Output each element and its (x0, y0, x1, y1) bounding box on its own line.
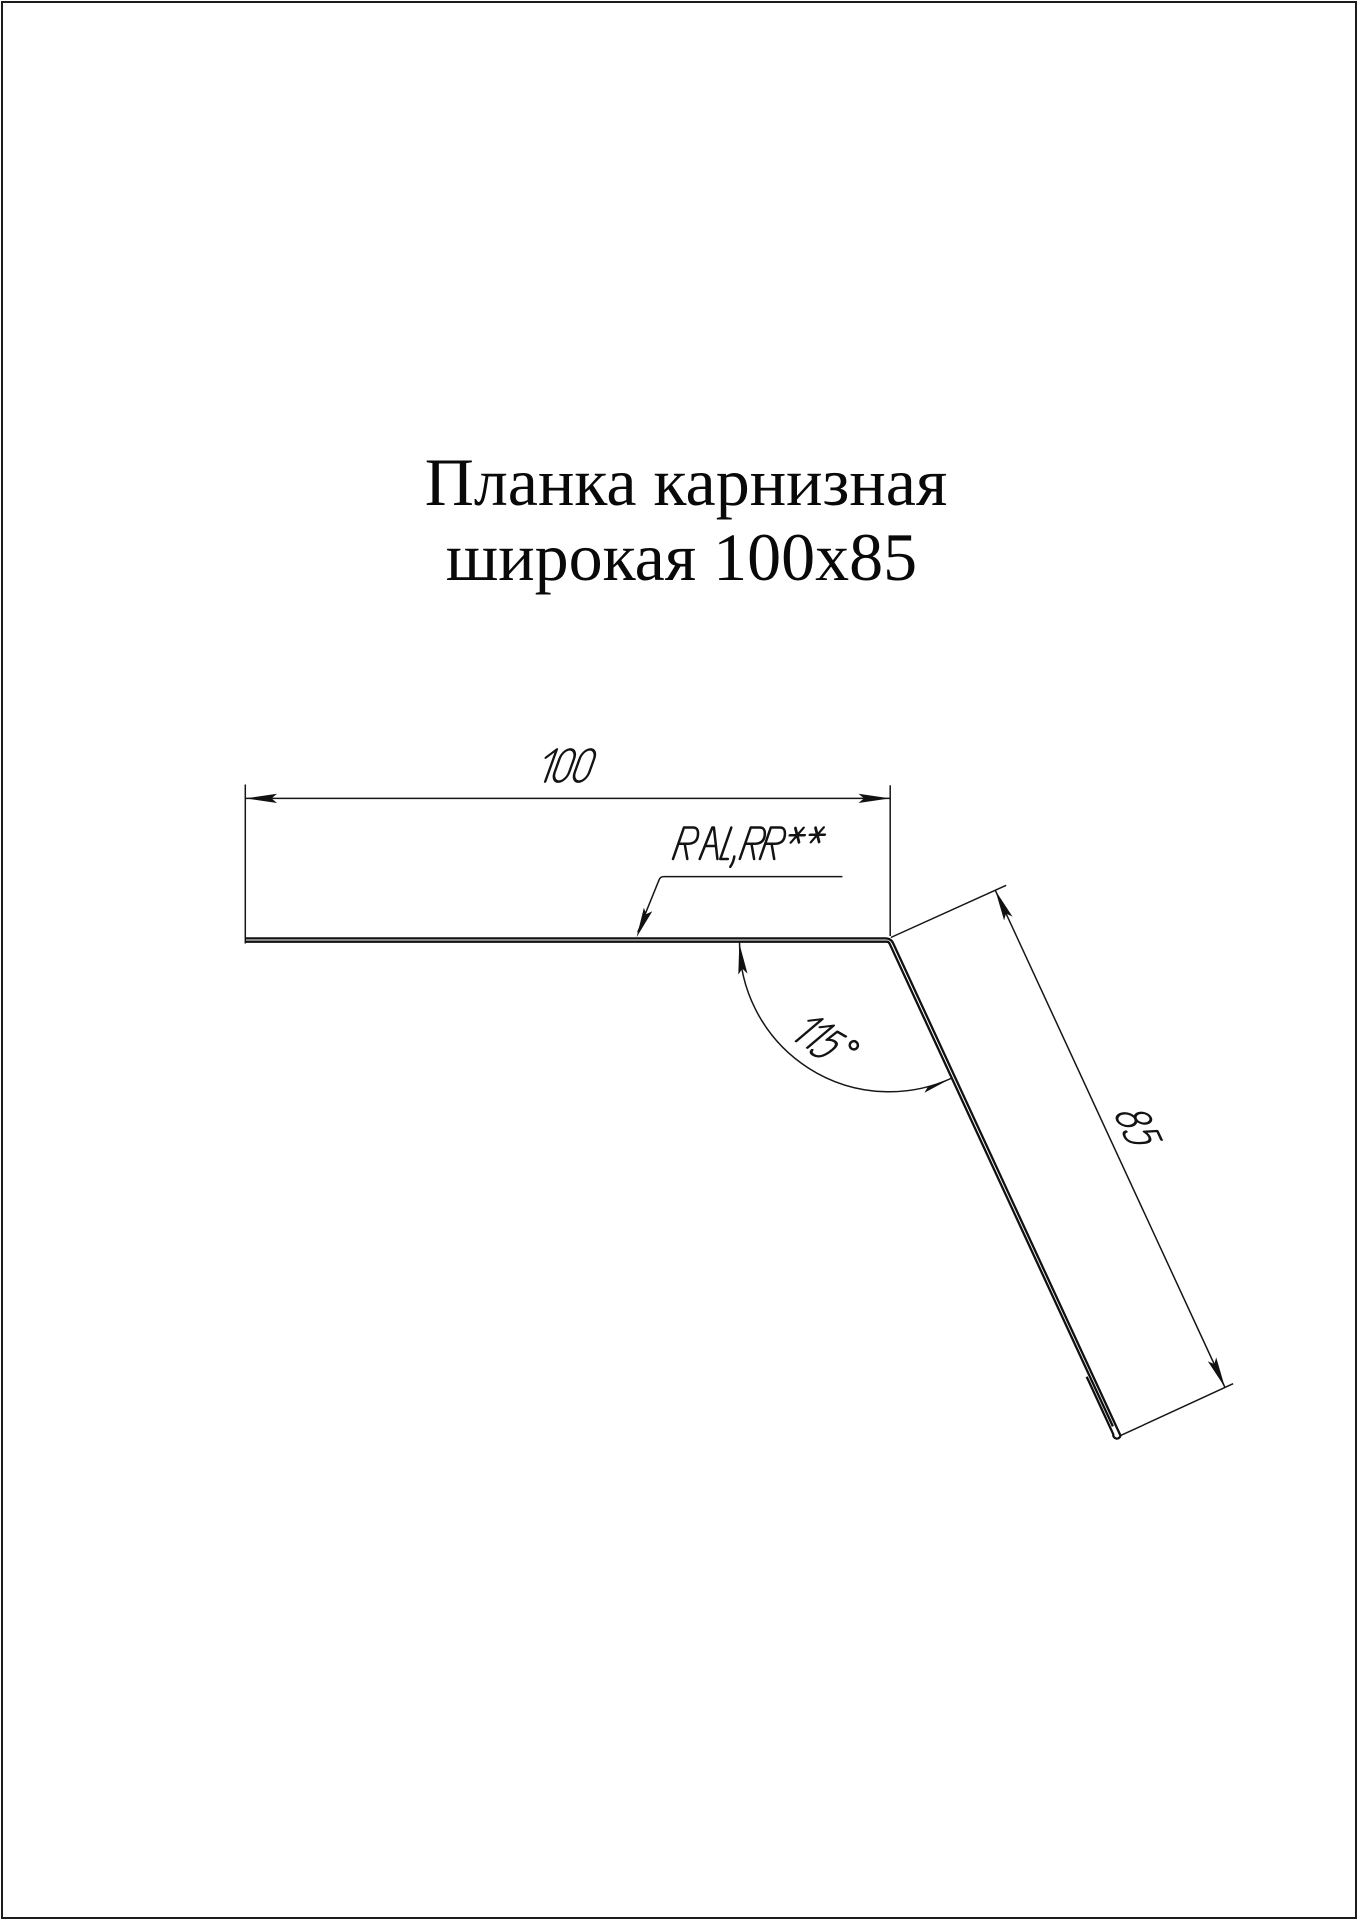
svg-text:Планка карнизная: Планка карнизная (425, 444, 947, 520)
svg-text:широкая 100x85: широкая 100x85 (446, 519, 917, 595)
